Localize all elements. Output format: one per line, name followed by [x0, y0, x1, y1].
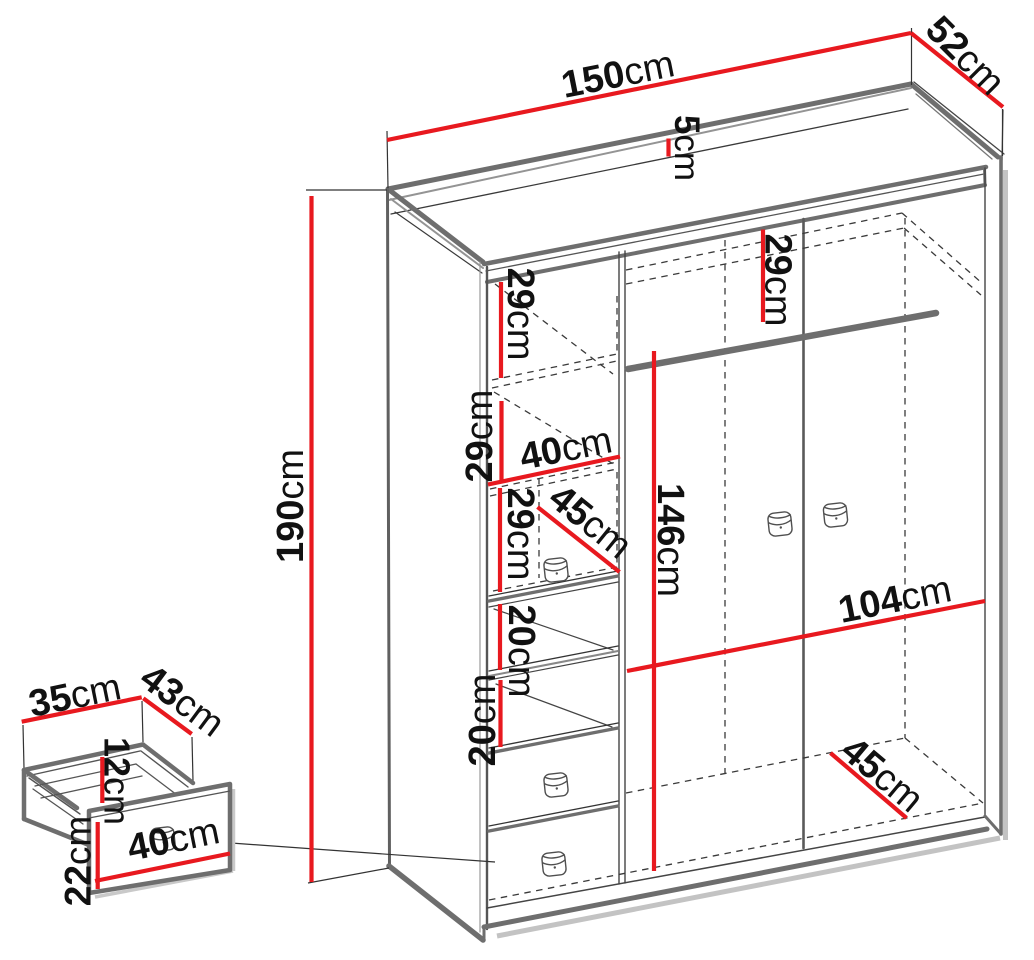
svg-text:29cm: 29cm — [499, 268, 541, 361]
svg-text:20cm: 20cm — [500, 605, 542, 698]
svg-text:5cm: 5cm — [668, 115, 707, 181]
svg-text:29cm: 29cm — [459, 390, 501, 483]
svg-text:29cm: 29cm — [757, 234, 799, 327]
svg-text:190cm: 190cm — [270, 449, 312, 563]
svg-text:22cm: 22cm — [57, 816, 98, 906]
svg-text:29cm: 29cm — [499, 488, 541, 581]
svg-text:12cm: 12cm — [97, 737, 138, 825]
svg-text:20cm: 20cm — [462, 674, 504, 767]
svg-text:146cm: 146cm — [649, 483, 691, 597]
